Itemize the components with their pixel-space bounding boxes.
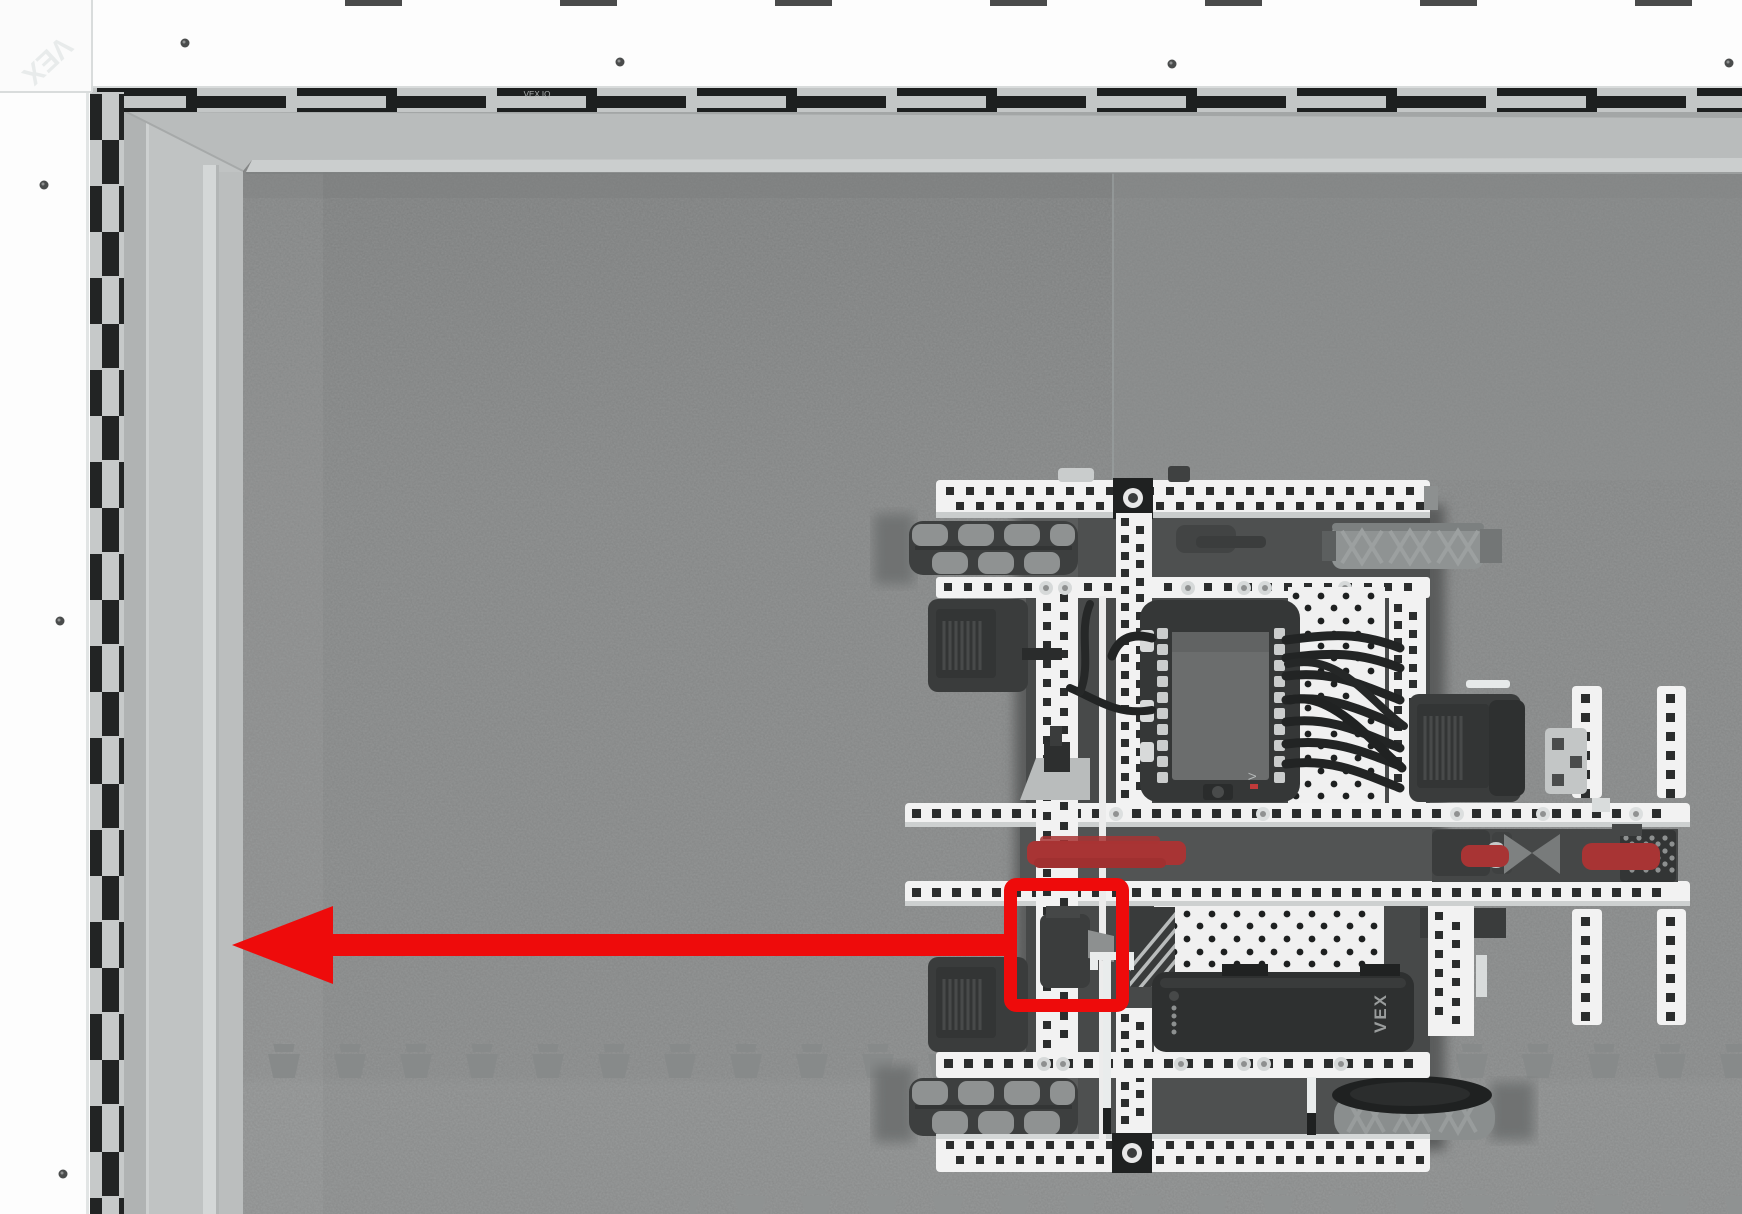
svg-text:V: V	[1247, 772, 1259, 780]
svg-text:VEX IQ: VEX IQ	[524, 90, 551, 99]
svg-text:VEX: VEX	[1371, 993, 1390, 1033]
